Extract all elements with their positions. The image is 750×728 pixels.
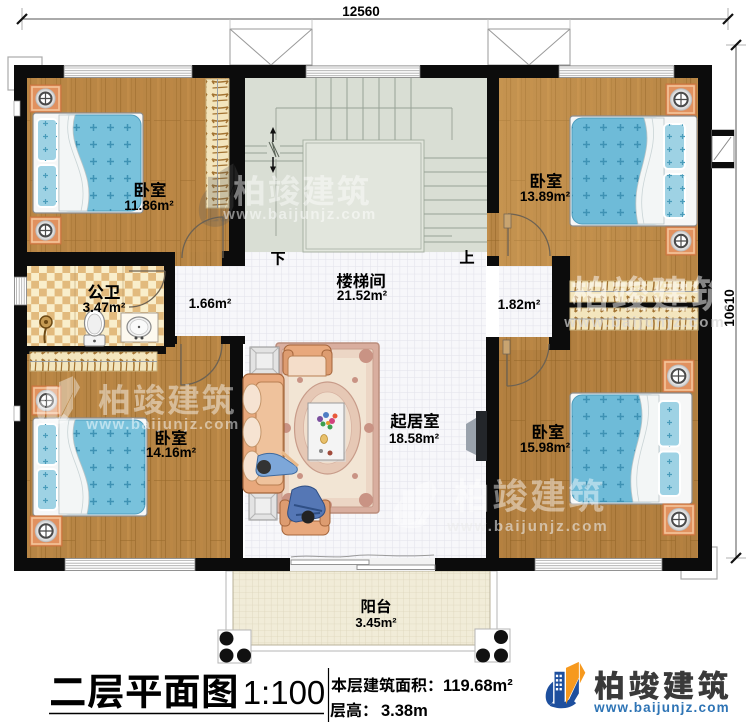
svg-text:21.52m²: 21.52m² <box>337 288 388 303</box>
svg-text:11.86m²: 11.86m² <box>124 198 174 213</box>
svg-text:3.47m²: 3.47m² <box>83 300 126 315</box>
svg-text:www.baijunjz.com: www.baijunjz.com <box>593 700 730 715</box>
svg-text:12560: 12560 <box>342 4 380 19</box>
svg-text:13.89m²: 13.89m² <box>520 189 571 204</box>
svg-text:www.baijunjz.com: www.baijunjz.com <box>446 518 608 535</box>
svg-text:1.66m²: 1.66m² <box>189 296 232 311</box>
svg-text:1:100: 1:100 <box>243 674 326 711</box>
svg-text:www.baijunjz.com: www.baijunjz.com <box>222 206 376 223</box>
svg-text:15.98m²: 15.98m² <box>520 440 571 455</box>
svg-text:www.baijunjz.com: www.baijunjz.com <box>85 416 239 433</box>
svg-text:3.38m: 3.38m <box>381 702 428 720</box>
svg-text:14.16m²: 14.16m² <box>146 445 197 460</box>
svg-text:1.82m²: 1.82m² <box>498 297 541 312</box>
svg-text:18.58m²: 18.58m² <box>389 431 440 446</box>
svg-text:www.baijunjz.com: www.baijunjz.com <box>563 314 725 331</box>
svg-text:119.68m²: 119.68m² <box>443 677 513 695</box>
svg-text:3.45m²: 3.45m² <box>355 615 397 630</box>
